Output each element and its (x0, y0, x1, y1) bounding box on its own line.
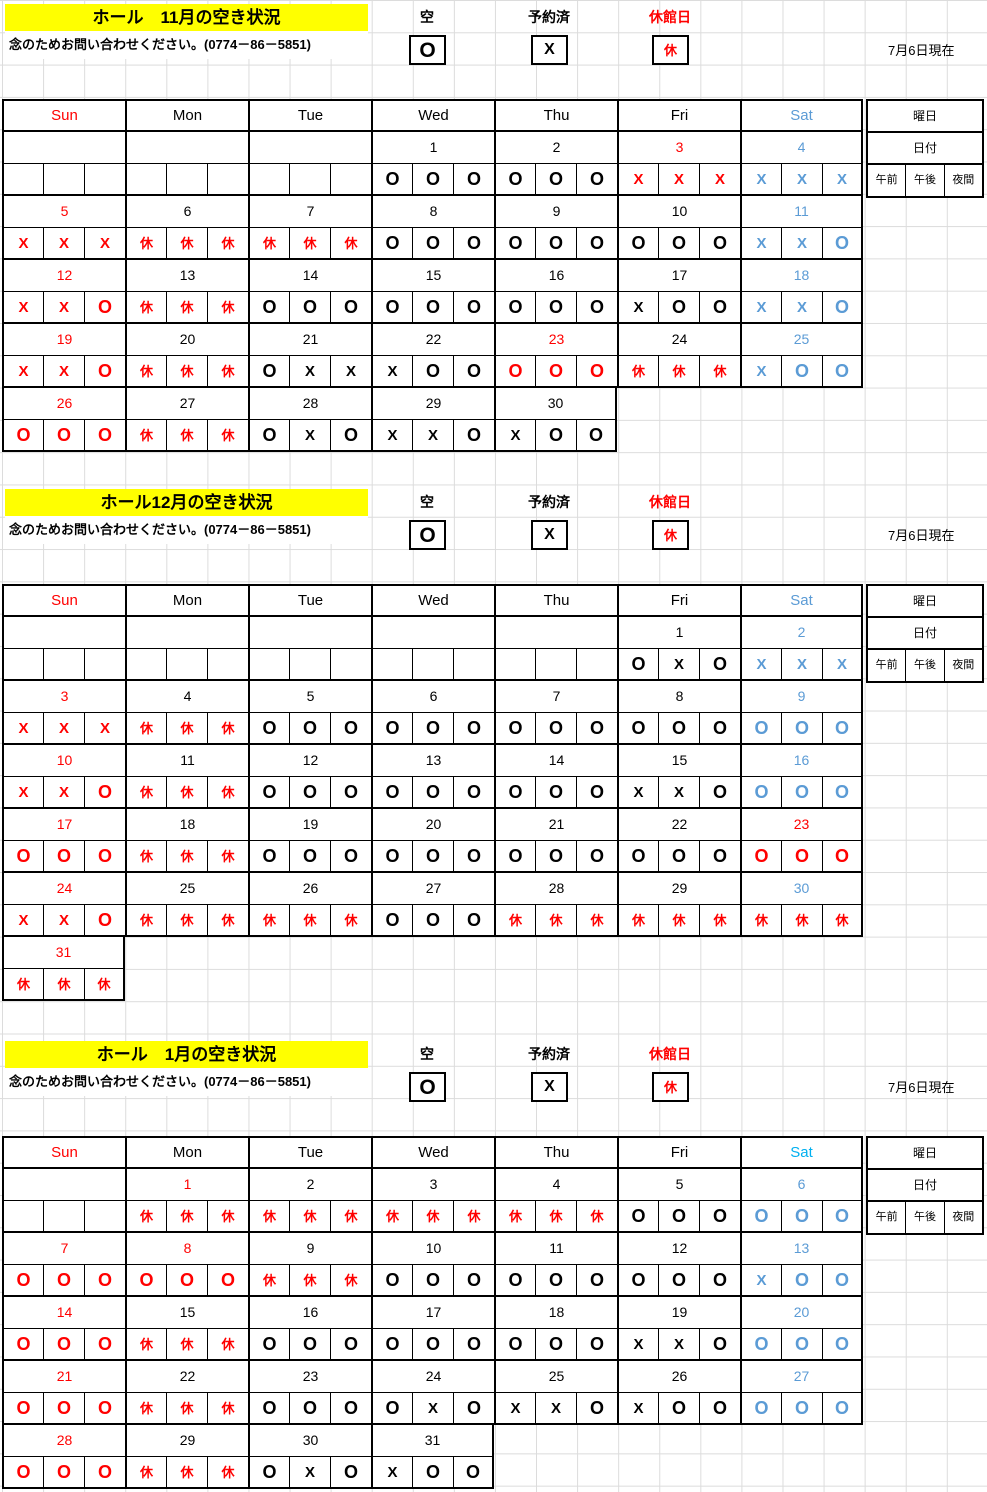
slot-cell: O (289, 777, 330, 807)
date-row: 12 (2, 617, 863, 649)
closed-mark: 休 (664, 44, 677, 57)
slot-cell: X (699, 164, 740, 194)
slot-cell: O (699, 1329, 740, 1359)
slot-cell: O (494, 1265, 535, 1295)
slot-cell: X (330, 356, 371, 386)
slot-cell: O (617, 841, 658, 871)
slot-mark: O (549, 847, 563, 865)
slot-mark: 休 (221, 301, 234, 314)
slot-cell: 休 (166, 905, 207, 935)
slot-cell: O (658, 841, 699, 871)
slot-mark: 休 (180, 786, 193, 799)
slot-cell: O (822, 777, 863, 807)
slot-cell: X (43, 292, 84, 322)
slot-label-afternoon: 午後 (905, 650, 943, 681)
date-cell: 3 (617, 132, 740, 164)
slot-cell: O (84, 1393, 125, 1423)
slot-mark: O (631, 234, 645, 252)
date-cell: 13 (125, 260, 248, 292)
slot-cell: O (371, 713, 412, 743)
slot-row: OOO休休休OOOOOOOOOOOOOOO (2, 841, 863, 873)
as-of-date: 7月6日現在 (888, 525, 954, 544)
slot-mark: 休 (344, 237, 357, 250)
slot-mark: 休 (632, 914, 645, 927)
legend-booked-label: 予約済 (528, 489, 570, 516)
slot-cell: X (2, 228, 43, 258)
date-cell: 13 (740, 1233, 863, 1265)
date-cell: 9 (494, 196, 617, 228)
slot-mark: O (835, 362, 849, 380)
slot-cell: 休 (289, 228, 330, 258)
slot-mark: O (344, 1335, 358, 1353)
date-cell: 26 (2, 388, 125, 420)
date-cell: 11 (125, 745, 248, 777)
slot-cell: 休 (822, 905, 863, 935)
slot-mark: 休 (180, 429, 193, 442)
slot-mark: O (590, 783, 604, 801)
date-cell: 7 (494, 681, 617, 713)
slot-mark: 休 (426, 1210, 439, 1223)
slot-cell: X (781, 164, 822, 194)
slot-mark: O (590, 847, 604, 865)
contact-note: 念のためお問い合わせください。(0774－86－5851) (5, 31, 368, 59)
slot-mark: O (713, 1399, 727, 1417)
date-cell: 28 (2, 1425, 125, 1457)
slot-cell: O (822, 1393, 863, 1423)
date-cell: 23 (248, 1361, 371, 1393)
slot-mark: O (262, 783, 276, 801)
slot-mark: O (590, 362, 604, 380)
slot-cell: O (289, 1329, 330, 1359)
slot-cell: 休 (289, 1265, 330, 1295)
slot-cell: X (494, 1393, 535, 1423)
slot-mark: 休 (57, 978, 70, 991)
slot-cell: O (658, 1265, 699, 1295)
slot-mark: 休 (263, 237, 276, 250)
slot-row: OOOOOOXXXXXX (2, 164, 863, 196)
slot-cell: X (617, 1393, 658, 1423)
slot-mark: O (713, 1335, 727, 1353)
slot-cell: O (576, 164, 617, 194)
slot-mark: O (467, 847, 481, 865)
slot-mark: O (467, 426, 481, 444)
slot-mark: O (426, 170, 440, 188)
slot-cell: O (371, 1393, 412, 1423)
slot-cell: 休 (617, 905, 658, 935)
slot-mark: O (795, 362, 809, 380)
calendar-week-row: 3456789XXX休休休OOOOOOOOOOOOOOO (2, 681, 863, 745)
weekday-info-box: 曜日 日付 午前 午後 夜間 (866, 584, 984, 683)
slot-cell: O (576, 292, 617, 322)
as-of-date: 7月6日現在 (888, 40, 954, 59)
slot-mark: 休 (263, 914, 276, 927)
date-row: 2627282930 (2, 388, 617, 420)
slot-cell (2, 1201, 43, 1231)
slot-mark: O (262, 362, 276, 380)
slot-cell: 休 (617, 356, 658, 386)
slot-mark: X (18, 300, 28, 315)
slot-mark: O (672, 847, 686, 865)
slot-mark: 休 (835, 914, 848, 927)
slot-cell: O (617, 649, 658, 679)
slot-mark: 休 (180, 1210, 193, 1223)
date-cell: 26 (617, 1361, 740, 1393)
date-cell: 4 (125, 681, 248, 713)
slot-cell: O (412, 905, 453, 935)
calendar-week-row: 28293031OOO休休休OXOXOO (2, 1425, 863, 1489)
slot-mark: O (508, 234, 522, 252)
slot-mark: O (98, 911, 112, 929)
slot-cell: 休 (166, 292, 207, 322)
date-cell: 7 (248, 196, 371, 228)
date-cell: 17 (371, 1297, 494, 1329)
date-cell: 21 (494, 809, 617, 841)
slot-mark: O (303, 1335, 317, 1353)
date-row: 19202122232425 (2, 324, 863, 356)
slot-mark: 休 (180, 1402, 193, 1415)
slot-cell: O (371, 841, 412, 871)
date-cell: 1 (617, 617, 740, 649)
slot-cell: X (781, 649, 822, 679)
slot-row: XXO休休休OOOOOOOOOXXOOOO (2, 777, 863, 809)
date-cell: 5 (617, 1169, 740, 1201)
slot-mark: 休 (140, 850, 153, 863)
slot-cell: O (699, 1201, 740, 1231)
contact-note: 念のためお問い合わせください。(0774－86－5851) (5, 516, 368, 544)
slot-cell: O (248, 841, 289, 871)
date-cell: 30 (248, 1425, 371, 1457)
slot-cell: O (535, 1265, 576, 1295)
slot-cell: X (740, 292, 781, 322)
date-cell (248, 617, 371, 649)
weekday-header-row: SunMonTueWedThuFriSat (2, 1136, 863, 1169)
slot-mark: X (18, 364, 28, 379)
slot-mark: O (549, 234, 563, 252)
weekday-header-sun: Sun (2, 101, 125, 130)
slot-cell: O (453, 713, 494, 743)
slot-cell: 休 (330, 228, 371, 258)
slot-cell: 休 (781, 905, 822, 935)
slot-cell: 休 (125, 905, 166, 935)
date-cell: 14 (2, 1297, 125, 1329)
contact-note: 念のためお問い合わせください。(0774－86－5851) (5, 1068, 368, 1096)
slot-mark: X (18, 785, 28, 800)
slot-mark: X (100, 721, 110, 736)
date-cell: 19 (617, 1297, 740, 1329)
info-row-slots: 午前 午後 夜間 (868, 165, 982, 196)
slot-cell: X (84, 228, 125, 258)
date-cell: 25 (494, 1361, 617, 1393)
slot-cell: 休 (535, 1201, 576, 1231)
slot-cell: O (740, 713, 781, 743)
legend-available-label: 空 (420, 489, 434, 516)
legend-booked-label: 予約済 (528, 1041, 570, 1068)
slot-cell: 休 (207, 292, 248, 322)
slot-mark: X (756, 364, 766, 379)
slot-cell: O (289, 713, 330, 743)
slot-cell: 休 (166, 420, 207, 450)
month-title: ホール 11月の空き状況 (5, 4, 368, 31)
legend-booked-box: X (531, 1072, 568, 1102)
slot-mark: X (551, 1401, 561, 1416)
date-row: 567891011 (2, 196, 863, 228)
slot-cell: O (658, 1201, 699, 1231)
as-of-date: 7月6日現在 (888, 1077, 954, 1096)
slot-mark: X (510, 428, 520, 443)
date-row: 123456 (2, 1169, 863, 1201)
date-cell: 2 (740, 617, 863, 649)
date-cell: 16 (740, 745, 863, 777)
slot-mark: O (16, 1463, 30, 1481)
slot-cell: O (371, 1265, 412, 1295)
slot-mark: X (633, 1401, 643, 1416)
slot-mark: X (59, 913, 69, 928)
slot-mark: O (795, 847, 809, 865)
slot-cell: O (248, 777, 289, 807)
slot-cell: O (248, 713, 289, 743)
slot-mark: O (139, 1271, 153, 1289)
slot-mark: X (18, 721, 28, 736)
calendar-week-row: 24252627282930XXO休休休休休休OOO休休休休休休休休休 (2, 873, 863, 937)
slot-cell: 休 (166, 228, 207, 258)
slot-row: 休休休休休休休休休休休休OOOOOO (2, 1201, 863, 1233)
slot-cell: O (289, 841, 330, 871)
slot-mark: O (385, 234, 399, 252)
legend-booked-box: X (531, 520, 568, 550)
date-cell: 12 (248, 745, 371, 777)
slot-cell: O (371, 905, 412, 935)
slot-mark: O (385, 911, 399, 929)
weekday-header-tue: Tue (248, 586, 371, 615)
slot-mark: O (426, 1335, 440, 1353)
slot-mark: O (467, 783, 481, 801)
slot-cell: X (658, 1329, 699, 1359)
slot-mark: O (16, 847, 30, 865)
slot-cell: 休 (535, 905, 576, 935)
date-cell: 24 (2, 873, 125, 905)
slot-mark: 休 (713, 914, 726, 927)
date-cell: 18 (494, 1297, 617, 1329)
legend-closed-box: 休 (652, 1072, 689, 1102)
slot-mark: O (672, 234, 686, 252)
date-row: 10111213141516 (2, 745, 863, 777)
slot-mark: 休 (221, 1338, 234, 1351)
date-cell: 5 (2, 196, 125, 228)
slot-mark: O (549, 426, 563, 444)
slot-mark: X (756, 300, 766, 315)
date-row: 31 (2, 937, 125, 969)
slot-cell: X (43, 777, 84, 807)
slot-cell: 休 (207, 777, 248, 807)
slot-mark: X (428, 1401, 438, 1416)
date-cell: 30 (494, 388, 617, 420)
slot-cell: X (494, 420, 535, 450)
slot-cell: O (740, 1201, 781, 1231)
slot-mark: O (466, 1463, 480, 1481)
slot-cell: 休 (330, 1265, 371, 1295)
slot-mark: O (589, 426, 603, 444)
date-cell: 19 (2, 324, 125, 356)
slot-cell: 休 (84, 969, 125, 999)
date-cell: 1 (371, 132, 494, 164)
slot-mark: O (426, 234, 440, 252)
slot-cell: O (781, 1329, 822, 1359)
slot-cell: O (699, 1265, 740, 1295)
slot-cell (453, 649, 494, 679)
info-row-weekday: 曜日 (868, 1138, 982, 1170)
slot-mark: O (303, 783, 317, 801)
slot-mark: O (672, 1399, 686, 1417)
weekday-header-fri: Fri (617, 1138, 740, 1167)
slot-cell: O (576, 713, 617, 743)
legend-booked-label: 予約済 (528, 4, 570, 31)
slot-mark: O (631, 1207, 645, 1225)
slot-cell: O (494, 228, 535, 258)
slot-mark: O (672, 1207, 686, 1225)
slot-cell: O (412, 356, 453, 386)
slot-cell: O (822, 292, 863, 322)
slot-cell: X (43, 228, 84, 258)
slot-cell: O (576, 228, 617, 258)
slot-mark: X (305, 364, 315, 379)
slot-cell (166, 649, 207, 679)
slot-cell: 休 (166, 1201, 207, 1231)
slot-cell: O (781, 356, 822, 386)
slot-cell: O (617, 713, 658, 743)
calendar-week-row: 14151617181920OOO休休休OOOOOOOOOXXOOOO (2, 1297, 863, 1361)
slot-mark: O (16, 1335, 30, 1353)
slot-cell: O (822, 228, 863, 258)
calendar-table-january: SunMonTueWedThuFriSat123456休休休休休休休休休休休休O… (2, 1136, 863, 1489)
legend-closed-label: 休館日 (649, 4, 691, 31)
slot-cell: O (453, 356, 494, 386)
legend-closed-box: 休 (652, 35, 689, 65)
slot-cell: O (453, 1329, 494, 1359)
slot-cell: X (371, 420, 412, 450)
weekday-header-row: SunMonTueWedThuFriSat (2, 99, 863, 132)
slot-mark: O (57, 1271, 71, 1289)
slot-cell: O (781, 841, 822, 871)
slot-cell: O (84, 841, 125, 871)
slot-cell: O (248, 1457, 289, 1487)
date-cell (2, 617, 125, 649)
slot-cell: X (740, 649, 781, 679)
slot-cell: 休 (576, 905, 617, 935)
slot-row: OOO休休休OXOXXOXOO (2, 420, 617, 452)
slot-mark: X (305, 1465, 315, 1480)
weekday-header-mon: Mon (125, 101, 248, 130)
slot-cell: X (617, 164, 658, 194)
slot-cell: O (699, 777, 740, 807)
slot-cell: 休 (166, 1457, 207, 1487)
date-cell: 31 (371, 1425, 494, 1457)
slot-mark: O (16, 1399, 30, 1417)
slot-mark: 休 (795, 914, 808, 927)
slot-mark: O (98, 1399, 112, 1417)
date-cell: 22 (371, 324, 494, 356)
date-cell (125, 617, 248, 649)
slot-cell: X (658, 777, 699, 807)
closed-mark: 休 (664, 529, 677, 542)
slot-mark: O (835, 783, 849, 801)
slot-cell (248, 164, 289, 194)
slot-cell: O (330, 1329, 371, 1359)
slot-cell: O (248, 420, 289, 450)
slot-cell: 休 (207, 1457, 248, 1487)
date-cell: 4 (740, 132, 863, 164)
slot-mark: 休 (180, 722, 193, 735)
slot-mark: O (344, 1463, 358, 1481)
booked-mark: X (544, 1079, 555, 1095)
slot-mark: O (631, 847, 645, 865)
slot-mark: O (16, 426, 30, 444)
slot-mark: X (59, 785, 69, 800)
slot-mark: 休 (221, 1210, 234, 1223)
slot-mark: O (549, 1335, 563, 1353)
slot-mark: 休 (180, 1338, 193, 1351)
slot-cell: O (576, 841, 617, 871)
calendar-week-row: 19202122232425XXO休休休OXXXOOOOO休休休XOO (2, 324, 863, 388)
slot-mark: X (387, 1465, 397, 1480)
slot-cell: O (781, 777, 822, 807)
slot-mark: O (426, 298, 440, 316)
weekday-header-sat: Sat (740, 101, 863, 130)
slot-cell: O (822, 713, 863, 743)
slot-cell: O (248, 356, 289, 386)
slot-cell: X (535, 1393, 576, 1423)
slot-mark: X (100, 236, 110, 251)
date-cell: 6 (740, 1169, 863, 1201)
date-cell: 2 (248, 1169, 371, 1201)
slot-cell: O (207, 1265, 248, 1295)
slot-cell: 休 (125, 292, 166, 322)
slot-cell (207, 649, 248, 679)
legend-available-label: 空 (420, 4, 434, 31)
slot-cell: O (412, 228, 453, 258)
slot-cell: X (781, 228, 822, 258)
slot-mark: O (631, 719, 645, 737)
date-cell: 14 (494, 745, 617, 777)
available-mark: O (419, 525, 435, 546)
slot-cell (84, 164, 125, 194)
slot-label-morning: 午前 (868, 650, 905, 681)
slot-mark: 休 (303, 914, 316, 927)
date-cell: 3 (2, 681, 125, 713)
legend-closed-label: 休館日 (649, 1041, 691, 1068)
slot-mark: X (633, 785, 643, 800)
slot-cell: O (43, 1457, 84, 1487)
slot-mark: O (467, 1271, 481, 1289)
slot-cell: O (43, 1329, 84, 1359)
slot-cell: O (412, 1265, 453, 1295)
info-row-date: 日付 (868, 1170, 982, 1202)
slot-cell: O (330, 777, 371, 807)
slot-cell: O (822, 841, 863, 871)
slot-cell: O (2, 420, 43, 450)
date-cell: 5 (248, 681, 371, 713)
slot-cell: O (781, 1393, 822, 1423)
slot-cell: X (43, 713, 84, 743)
slot-mark: X (674, 1337, 684, 1352)
slot-mark: O (57, 1335, 71, 1353)
info-row-weekday: 曜日 (868, 586, 982, 618)
date-cell: 17 (2, 809, 125, 841)
slot-mark: O (549, 1271, 563, 1289)
slot-mark: X (756, 657, 766, 672)
slot-cell: 休 (125, 841, 166, 871)
slot-mark: X (18, 236, 28, 251)
slot-mark: O (426, 362, 440, 380)
